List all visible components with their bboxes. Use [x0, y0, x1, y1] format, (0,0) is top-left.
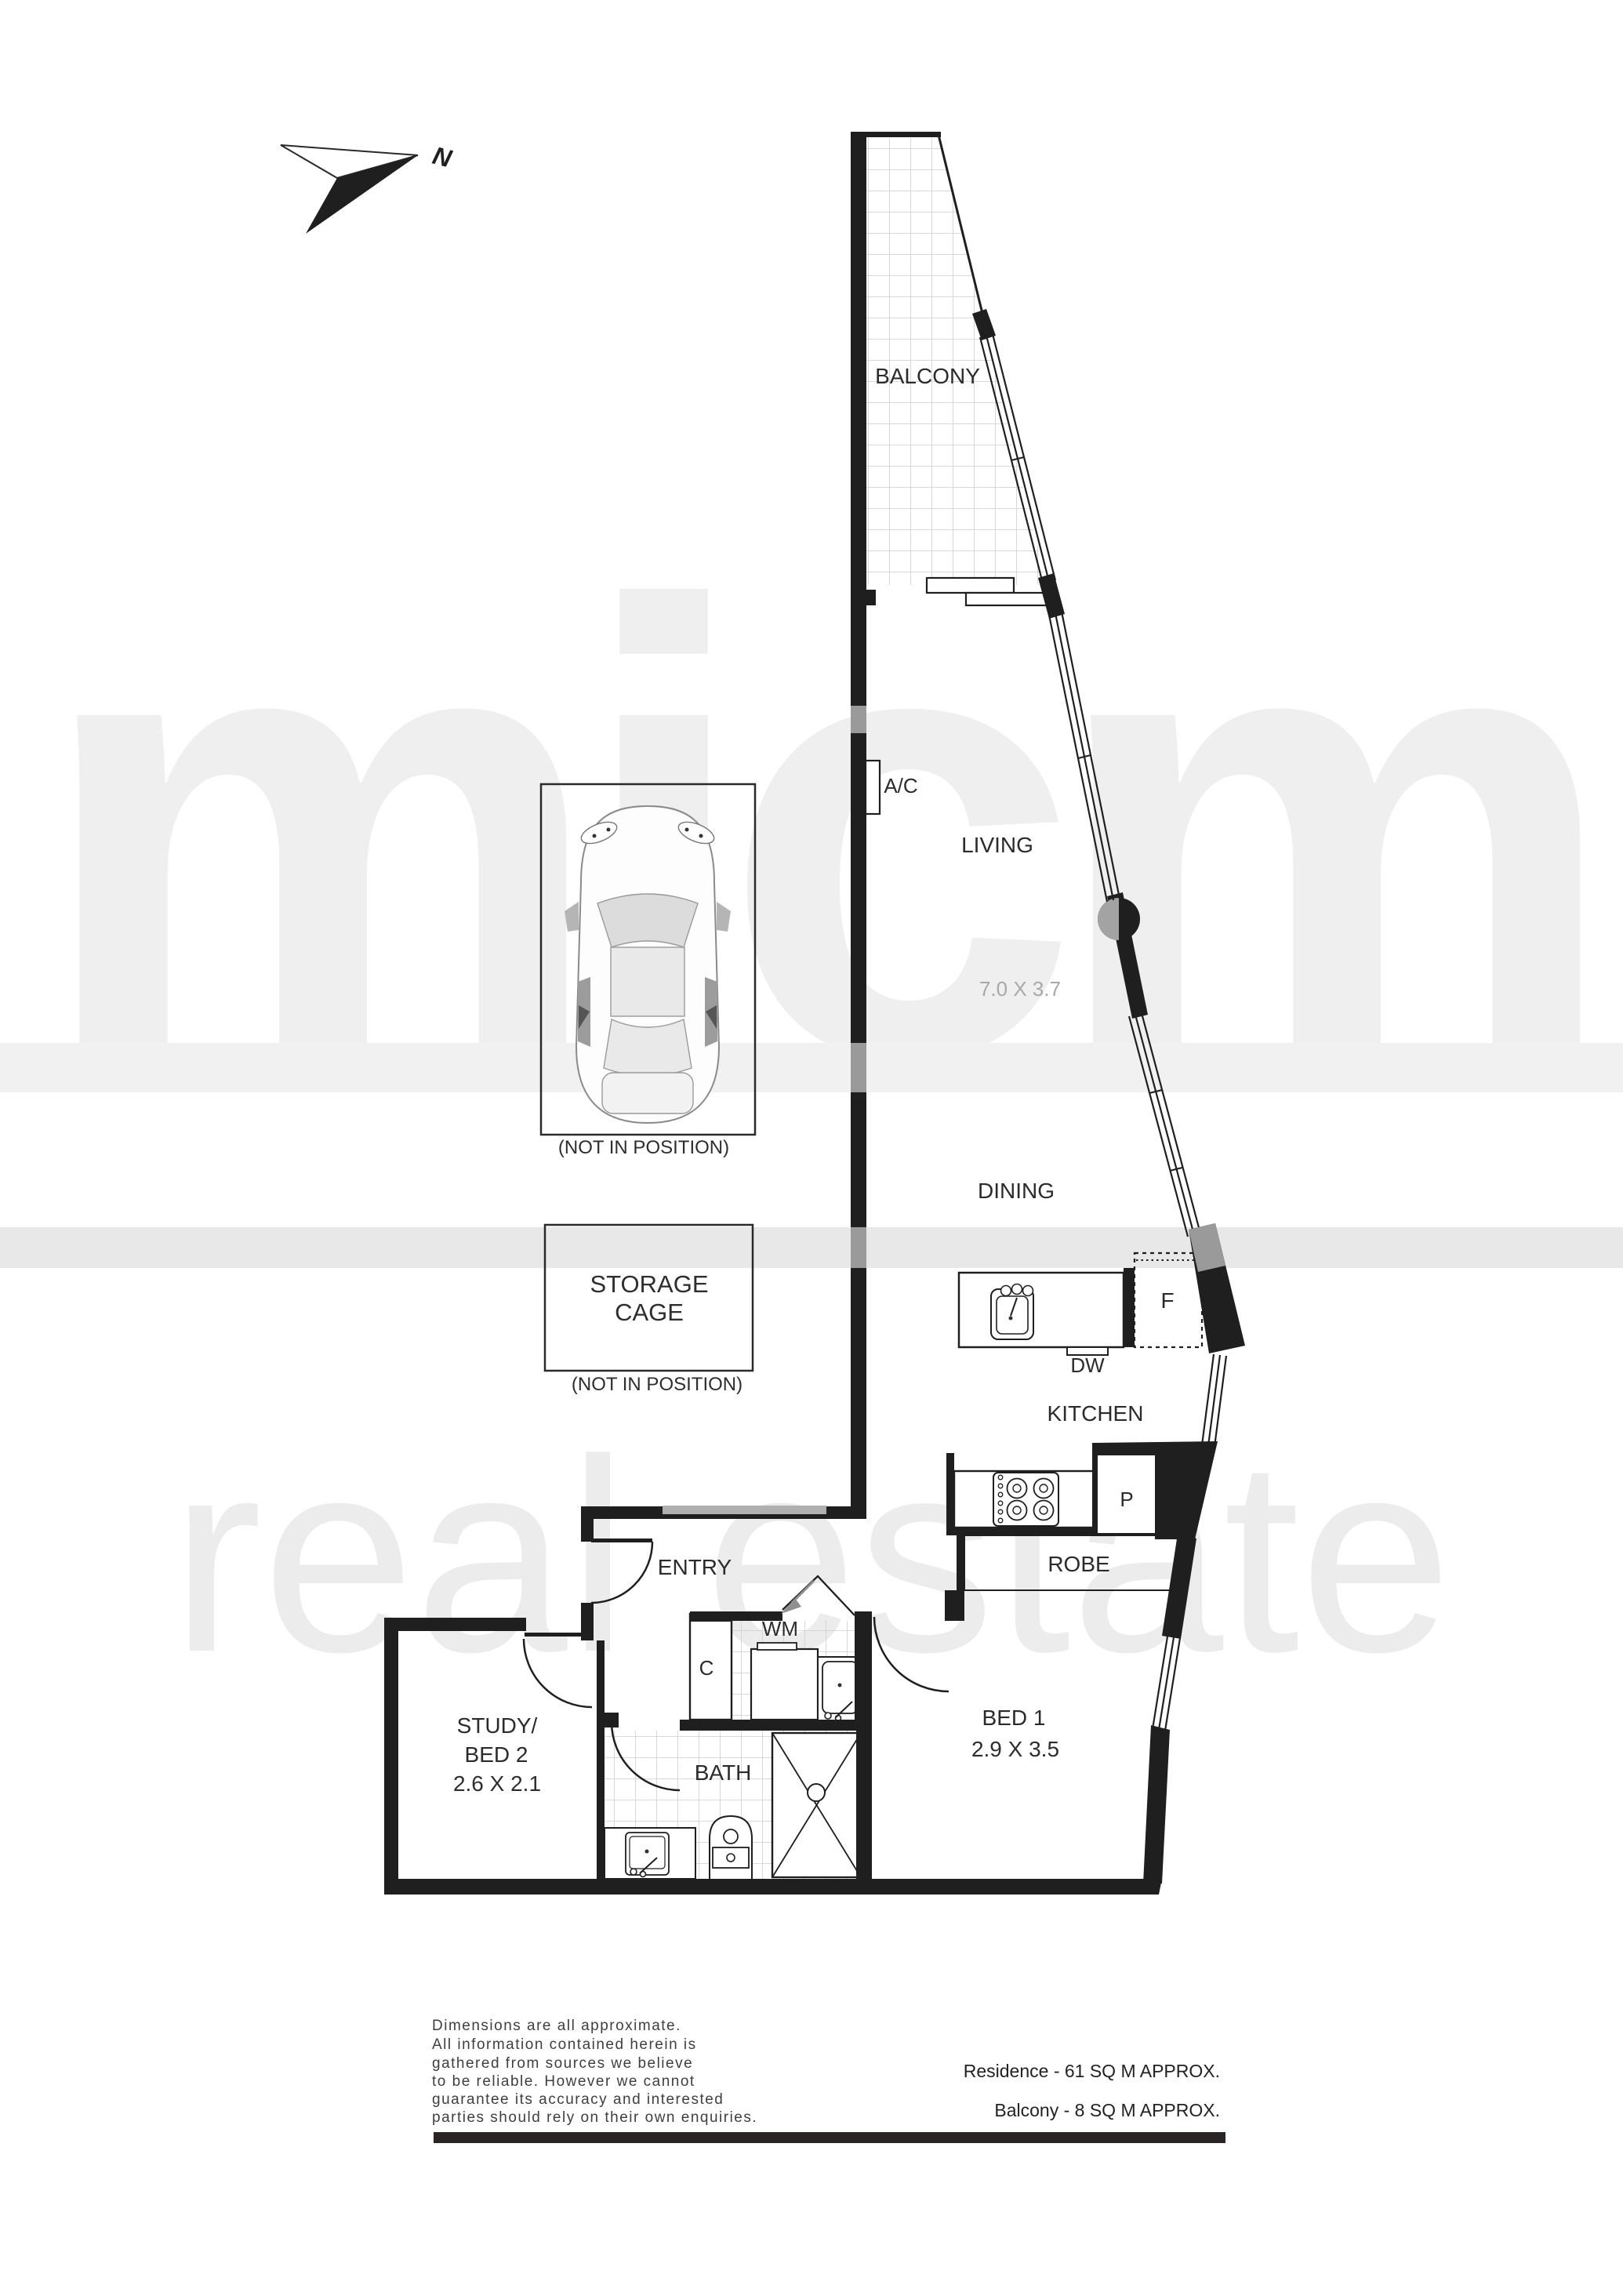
- sliding-door-panel: [966, 593, 1048, 605]
- floor-plan: micm real estate: [0, 0, 1623, 2296]
- disclaimer-line: parties should rely on their own enquiri…: [432, 2109, 757, 2126]
- disclaimer-line: Dimensions are all approximate.: [432, 2018, 681, 2034]
- balcony-label: BALCONY: [875, 364, 980, 388]
- cooktop-icon: [993, 1473, 1058, 1526]
- living-label: LIVING: [961, 833, 1033, 857]
- footer-divider: [434, 2132, 1225, 2143]
- wm-label: WM: [762, 1617, 798, 1640]
- disclaimer-line: to be reliable. However we cannot: [432, 2073, 695, 2090]
- disclaimer-line: guarantee its accuracy and interested: [432, 2091, 724, 2108]
- fridge-label: F: [1160, 1288, 1174, 1313]
- laundry-bulkhead: [663, 1506, 826, 1514]
- balcony-area: Balcony - 8 SQ M APPROX.: [994, 2100, 1220, 2120]
- dining-label: DINING: [978, 1179, 1055, 1203]
- pantry-label: P: [1120, 1488, 1133, 1511]
- entry-door-leaf: [591, 1539, 652, 1542]
- study-label-1: STUDY/: [457, 1713, 538, 1738]
- study-dims: 2.6 X 2.1: [453, 1771, 541, 1796]
- storage-label-1: STORAGE: [590, 1270, 708, 1298]
- bath-label: BATH: [695, 1760, 752, 1785]
- kitchen-label: KITCHEN: [1048, 1401, 1144, 1426]
- car-note: (NOT IN POSITION): [558, 1137, 729, 1158]
- watermark-band-upper: [0, 1043, 1623, 1092]
- cupboard-label: C: [699, 1656, 714, 1680]
- disclaimer-line: All information contained herein is: [432, 2036, 697, 2053]
- north-letter: N: [430, 141, 455, 173]
- entry-label: ENTRY: [658, 1555, 732, 1579]
- kitchen-island: [959, 1273, 1124, 1347]
- residence-area: Residence - 61 SQ M APPROX.: [964, 2061, 1220, 2081]
- north-arrow-icon: N: [281, 141, 455, 234]
- living-dims: 7.0 X 3.7: [979, 977, 1061, 1001]
- ac-unit-icon: [866, 761, 880, 814]
- shower-icon: [772, 1733, 861, 1877]
- storage-note: (NOT IN POSITION): [572, 1374, 743, 1395]
- washing-machine-icon: [751, 1643, 818, 1720]
- dw-label: DW: [1070, 1353, 1105, 1377]
- vanity-icon: [605, 1828, 695, 1879]
- ac-label: A/C: [884, 774, 917, 797]
- bed1-label: BED 1: [982, 1706, 1046, 1730]
- sink-icon: [991, 1284, 1033, 1340]
- sliding-door-panel: [927, 578, 1014, 593]
- robe-label: ROBE: [1048, 1552, 1109, 1576]
- disclaimer-line: gathered from sources we believe: [432, 2055, 693, 2072]
- footer: Dimensions are all approximate. All info…: [432, 2018, 1225, 2143]
- toilet-icon: [710, 1816, 752, 1879]
- car-icon: [565, 806, 731, 1123]
- floor-plan-page: micm real estate: [0, 0, 1623, 2296]
- study-door-leaf: [525, 1633, 592, 1637]
- bed1-dims: 2.9 X 3.5: [971, 1737, 1059, 1761]
- storage-label-2: CAGE: [615, 1299, 684, 1326]
- study-label-2: BED 2: [465, 1742, 528, 1767]
- watermark: micm real estate: [0, 473, 1623, 1709]
- watermark-band: [0, 1227, 1623, 1268]
